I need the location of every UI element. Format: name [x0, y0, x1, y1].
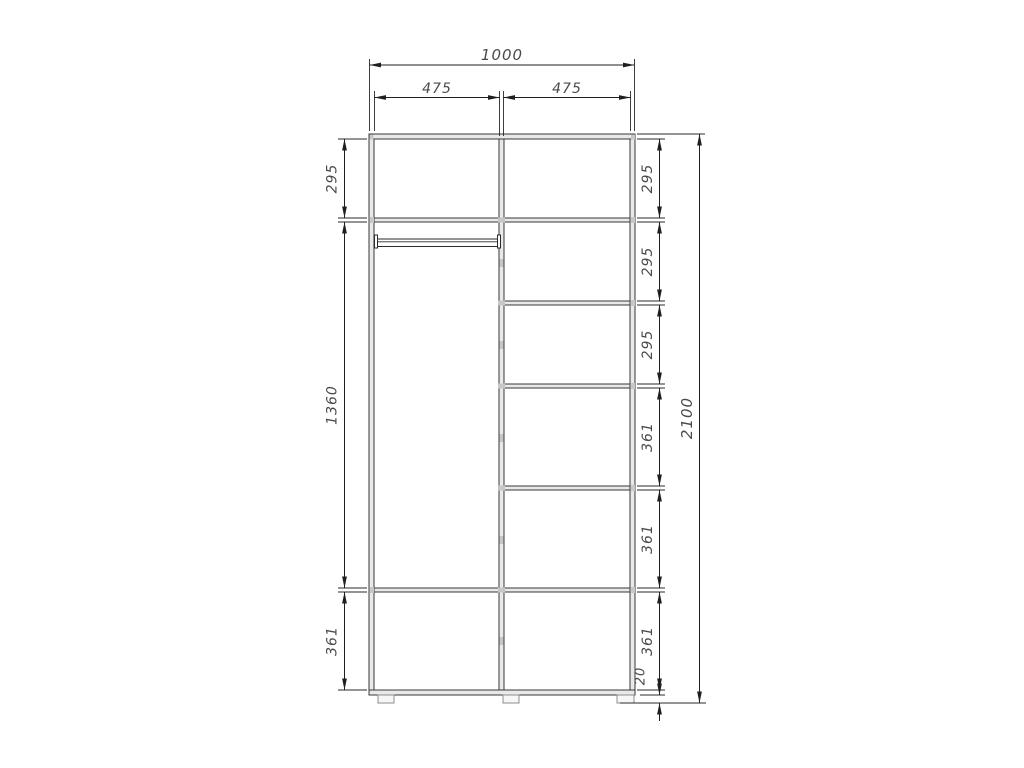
foot-right: [617, 695, 634, 703]
top-panel: [369, 134, 635, 139]
dim-label-right-2: 295: [640, 247, 656, 277]
joint-mark: [498, 588, 505, 593]
dim-left-column: 295 1360 361: [325, 139, 368, 690]
joint-mark: [500, 259, 504, 267]
joint-mark: [370, 587, 374, 593]
joint-mark: [631, 587, 635, 593]
joint-mark: [498, 301, 505, 306]
joint-mark: [498, 486, 505, 491]
clothes-rail: [375, 235, 501, 248]
wardrobe-dimension-drawing: 1000 475 475 295 1360 361: [0, 0, 1024, 768]
dim-label-left-bottom: 361: [325, 626, 341, 656]
right-shelf-2: [504, 384, 630, 388]
dim-label-plinth: 20: [634, 667, 649, 686]
joint-mark: [500, 536, 504, 544]
foot-center: [503, 695, 519, 703]
dim-label-left-middle: 1360: [325, 385, 341, 425]
right-shelf-1: [504, 301, 630, 305]
dim-plinth: 20: [634, 667, 660, 721]
joint-mark: [500, 637, 504, 645]
dim-width-left: 475: [375, 81, 500, 136]
joint-mark: [631, 383, 635, 389]
bottom-panel: [369, 690, 635, 695]
right-shelf-3: [504, 486, 630, 490]
dim-label-right-4: 361: [640, 422, 656, 452]
joint-mark: [500, 434, 504, 442]
dim-label-right-5: 361: [640, 524, 656, 554]
joint-mark: [500, 341, 504, 349]
dim-label-width-left: 475: [422, 81, 452, 97]
joint-mark: [498, 384, 505, 389]
joint-mark: [631, 217, 635, 223]
dim-label-width-total: 1000: [481, 46, 523, 64]
feet: [378, 695, 634, 703]
joint-mark: [498, 218, 505, 223]
foot-left: [378, 695, 394, 703]
joint-mark: [370, 217, 374, 223]
dim-label-right-6: 361: [640, 626, 656, 656]
dim-width-right: 475: [504, 81, 631, 136]
dim-label-right-3: 295: [640, 330, 656, 360]
dim-right-column: 295 295 295 361 361 361: [637, 139, 665, 695]
drawing-page: 1000 475 475 295 1360 361: [0, 0, 1024, 768]
dim-label-width-right: 475: [552, 81, 582, 97]
dim-width-total: 1000: [370, 46, 635, 131]
joint-mark: [370, 135, 374, 140]
joint-mark: [631, 135, 635, 140]
rail-bar: [378, 239, 498, 247]
dim-label-right-1: 295: [640, 164, 656, 194]
dim-label-left-top: 295: [325, 164, 341, 194]
joint-mark: [631, 485, 635, 491]
joint-mark: [631, 300, 635, 306]
dim-label-height-total: 2100: [678, 397, 696, 439]
